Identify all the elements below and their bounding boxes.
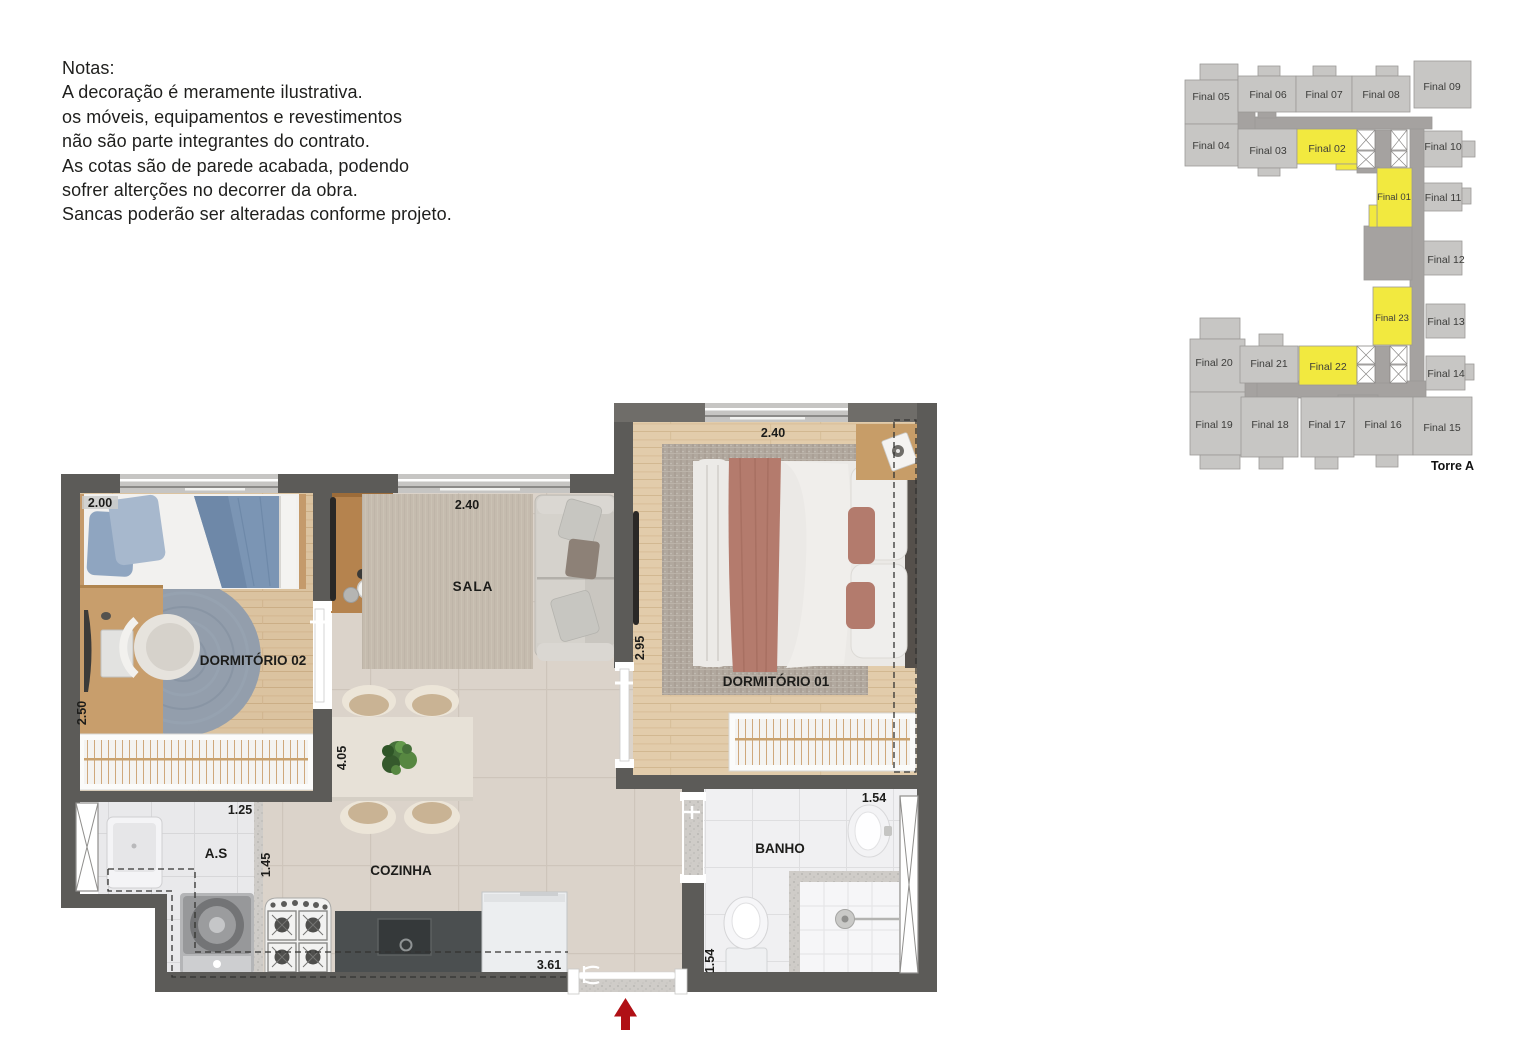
svg-text:Final 18: Final 18: [1251, 419, 1289, 431]
svg-text:2.50: 2.50: [75, 701, 89, 725]
svg-text:Final 21: Final 21: [1250, 358, 1288, 370]
svg-text:Final 17: Final 17: [1308, 419, 1346, 431]
svg-text:2.95: 2.95: [633, 636, 647, 660]
svg-text:Final 19: Final 19: [1195, 419, 1233, 431]
svg-text:SALA: SALA: [453, 579, 494, 594]
svg-text:Final 11: Final 11: [1425, 192, 1462, 204]
svg-text:BANHO: BANHO: [755, 841, 805, 856]
svg-text:Final 14: Final 14: [1427, 368, 1465, 380]
svg-text:1.54: 1.54: [703, 949, 717, 973]
svg-text:Final 15: Final 15: [1423, 422, 1461, 434]
svg-text:Torre A: Torre A: [1431, 459, 1474, 473]
svg-text:2.40: 2.40: [455, 498, 479, 512]
svg-text:4.05: 4.05: [335, 746, 349, 770]
svg-text:1.25: 1.25: [228, 803, 252, 817]
svg-text:2.00: 2.00: [88, 496, 112, 510]
svg-text:A.S: A.S: [205, 846, 228, 861]
svg-text:Final 05: Final 05: [1192, 91, 1230, 103]
svg-text:Final 10: Final 10: [1424, 141, 1462, 153]
svg-text:Final 07: Final 07: [1305, 89, 1343, 101]
svg-text:Final 12: Final 12: [1427, 254, 1465, 266]
svg-text:Final 23: Final 23: [1375, 313, 1409, 324]
svg-text:1.45: 1.45: [259, 853, 273, 877]
svg-text:2.40: 2.40: [761, 426, 785, 440]
svg-text:Final 06: Final 06: [1249, 89, 1287, 101]
svg-text:Final 16: Final 16: [1364, 419, 1402, 431]
svg-text:1.54: 1.54: [862, 791, 886, 805]
svg-text:DORMITÓRIO 01: DORMITÓRIO 01: [723, 674, 830, 689]
svg-text:3.61: 3.61: [537, 958, 561, 972]
svg-text:Final 01: Final 01: [1377, 192, 1411, 203]
svg-text:DORMITÓRIO 02: DORMITÓRIO 02: [200, 653, 307, 668]
svg-text:Final 08: Final 08: [1362, 89, 1400, 101]
svg-text:Final 09: Final 09: [1423, 81, 1461, 93]
svg-text:Final 22: Final 22: [1309, 361, 1347, 373]
svg-text:Final 13: Final 13: [1427, 316, 1465, 328]
svg-text:Final 04: Final 04: [1192, 140, 1230, 152]
svg-text:Final 20: Final 20: [1195, 357, 1233, 369]
svg-text:Final 02: Final 02: [1308, 143, 1346, 155]
svg-text:Final 03: Final 03: [1249, 145, 1287, 157]
svg-text:COZINHA: COZINHA: [370, 863, 432, 878]
